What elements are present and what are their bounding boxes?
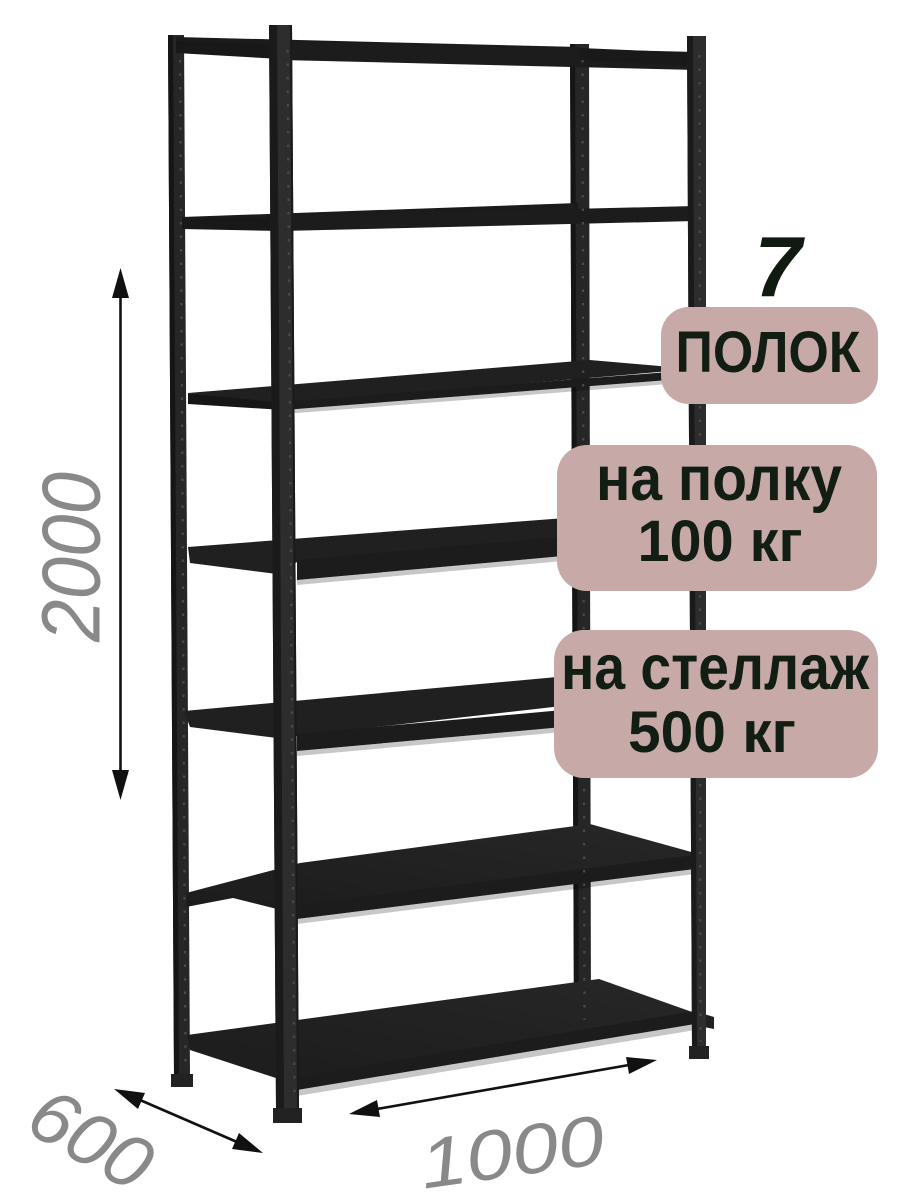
svg-text:500 кг: 500 кг: [628, 700, 796, 765]
svg-text:на стеллаж: на стеллаж: [561, 633, 870, 703]
svg-text:ПОЛОК: ПОЛОК: [676, 320, 862, 385]
svg-text:7: 7: [754, 220, 805, 315]
svg-text:2000: 2000: [25, 472, 118, 643]
svg-text:на полку: на полку: [596, 444, 842, 514]
svg-text:100 кг: 100 кг: [638, 509, 803, 574]
